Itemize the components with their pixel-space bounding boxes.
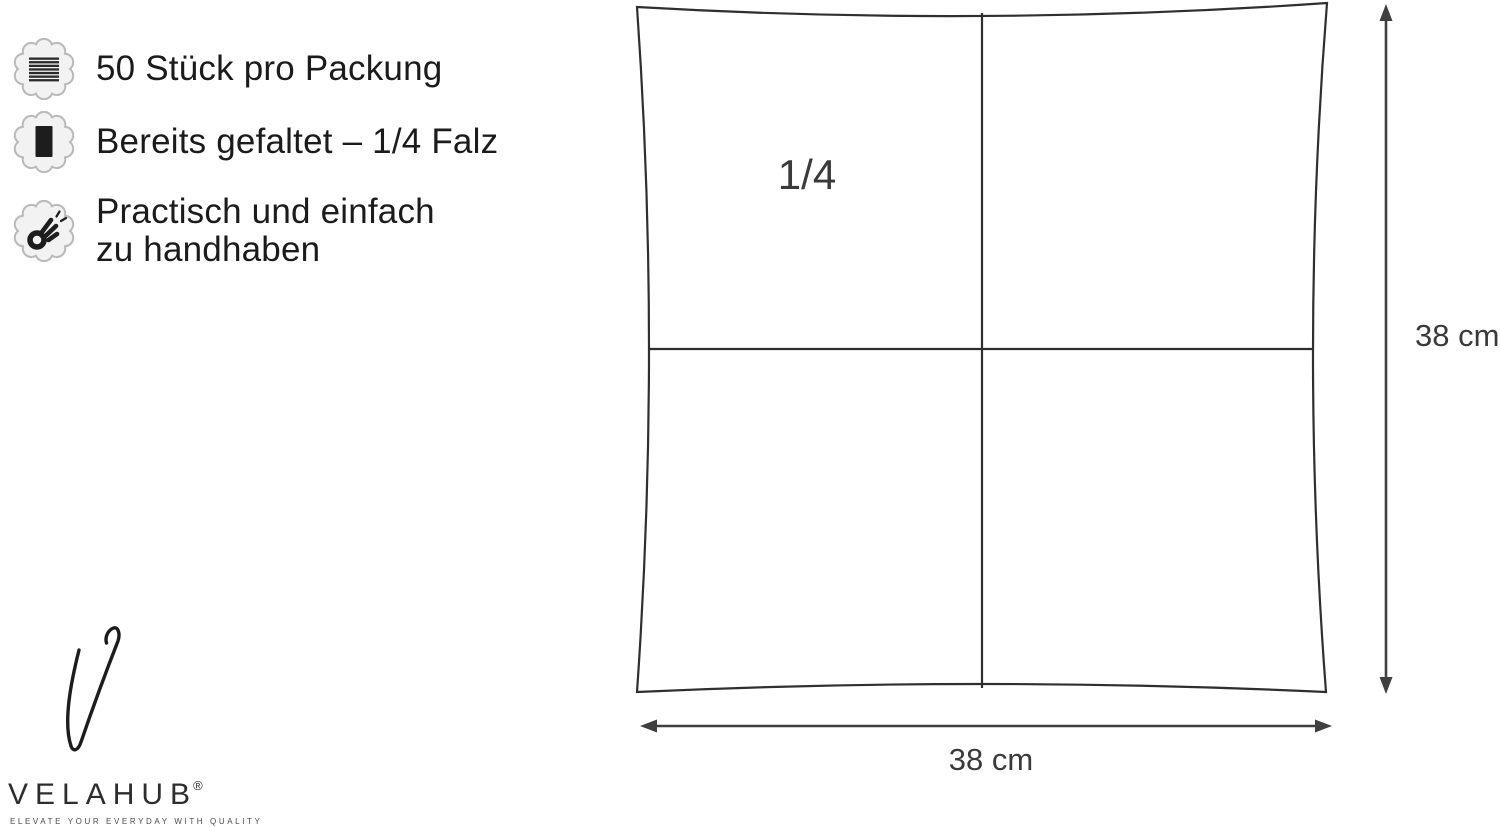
product-infographic: 50 Stück pro Packung Bereits gefaltet – … [0,0,1500,827]
height-dimension-label: 38 cm [1415,318,1499,353]
height-dimension-arrow [1380,4,1393,694]
ok-hand-icon [12,199,76,263]
feature-item-pack-count: 50 Stück pro Packung [12,37,442,101]
width-dimension-arrow [640,720,1332,733]
quadrant-label: 1/4 [778,151,836,198]
feature-label-pack-count: 50 Stück pro Packung [96,50,442,88]
arrowhead-right-icon [1315,720,1332,733]
arrowhead-left-icon [640,720,657,733]
arrowhead-down-icon [1380,677,1393,694]
napkin-dimension-diagram: 1/4 38 cm 38 cm [600,0,1500,827]
feature-label-prefolded: Bereits gefaltet – 1/4 Falz [96,123,498,161]
folded-napkin-icon [12,110,76,174]
registered-trademark-icon: ® [193,778,203,793]
feature-label-easy-handling-line1: Practisch und einfach [96,193,435,231]
arrowhead-up-icon [1380,4,1393,21]
feature-item-prefolded: Bereits gefaltet – 1/4 Falz [12,110,498,174]
napkin-stack-icon [12,37,76,101]
brand-script-v-logo [55,620,145,772]
brand-name: VELAHUB [8,778,197,811]
brand-tagline: ELEVATE YOUR EVERYDAY WITH QUALITY [10,817,262,826]
brand-block: VELAHUB® ELEVATE YOUR EVERYDAY WITH QUAL… [0,608,260,827]
width-dimension-label: 38 cm [949,742,1033,777]
feature-label-easy-handling-line2: zu handhaben [96,231,435,269]
feature-label-easy-handling: Practisch und einfach zu handhaben [96,193,435,269]
feature-item-easy-handling: Practisch und einfach zu handhaben [12,193,435,269]
brand-wordmark: VELAHUB® [8,778,203,812]
